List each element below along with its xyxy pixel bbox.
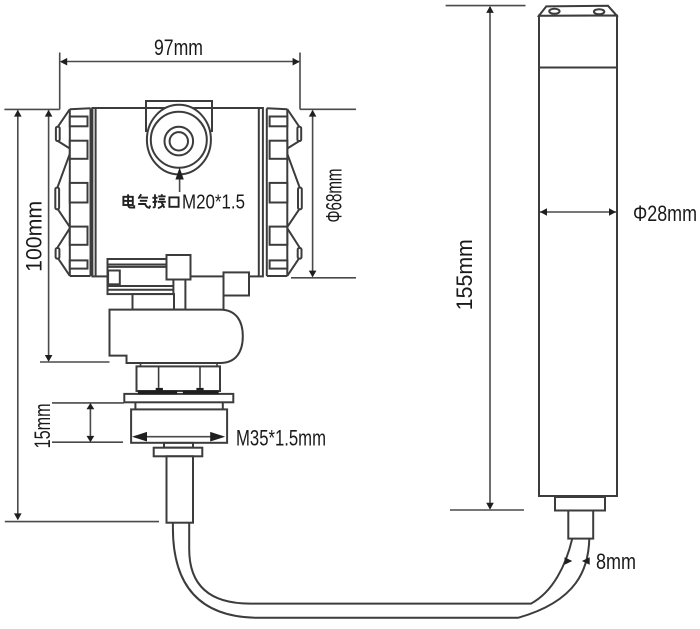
svg-text:155mm: 155mm <box>452 239 477 310</box>
svg-text:Φ68mm: Φ68mm <box>321 169 346 223</box>
svg-text:15mm: 15mm <box>30 403 55 448</box>
svg-text:Φ28mm: Φ28mm <box>633 201 697 226</box>
svg-text:M35*1.5mm: M35*1.5mm <box>236 426 326 451</box>
svg-text:M20*1.5: M20*1.5 <box>182 192 245 214</box>
svg-text:8mm: 8mm <box>596 549 636 574</box>
svg-text:97mm: 97mm <box>154 35 203 60</box>
svg-text:100mm: 100mm <box>21 201 46 272</box>
